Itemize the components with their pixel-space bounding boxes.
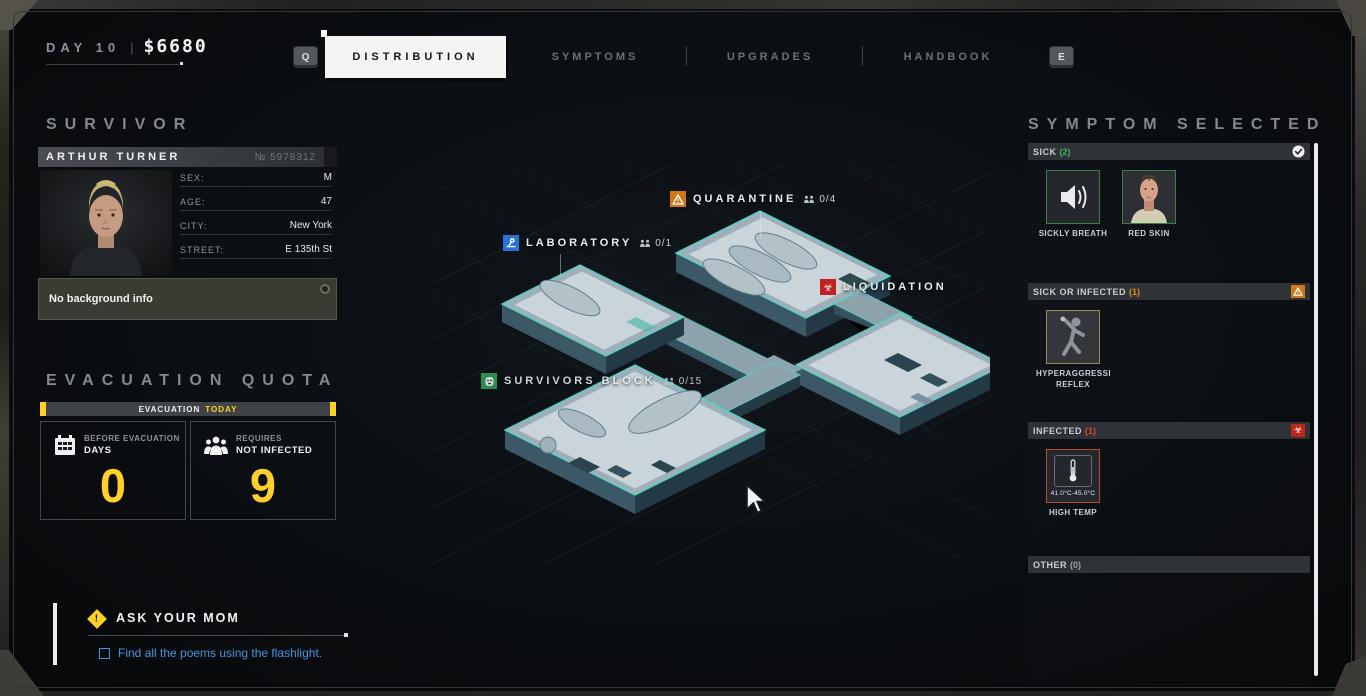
evacuation-section-title: EVACUATION QUOTA (46, 372, 338, 390)
people-icon (803, 195, 815, 204)
exclamation-diamond-icon: ! (87, 609, 107, 629)
people-icon (639, 239, 651, 248)
survivor-id: № 5978312 (255, 152, 316, 163)
people-icon (203, 434, 229, 456)
field-value: 47 (321, 196, 332, 210)
section-label: SICK (1033, 147, 1057, 157)
quest-objective[interactable]: Find all the poems using the flashlight. (99, 646, 339, 662)
location-count: 0/15 (663, 376, 702, 387)
quarantine-leader-line (760, 212, 761, 238)
tab-separator (862, 46, 863, 66)
map-label-quarantine[interactable]: QUARANTINE 0/4 (670, 191, 836, 207)
evac-subtitle: REQUIRES (236, 434, 312, 443)
quest-title: ASK YOUR MOM (116, 611, 240, 625)
game-screen: LABORATORY 0/1 QUARANTINE 0/4 ☣ LIQUIDAT… (0, 0, 1366, 696)
symptom-hyperaggressive-reflex[interactable]: HYPERAGGRESSIVE REFLEX (1042, 310, 1104, 416)
map-label-liquidation[interactable]: ☣ LIQUIDATION (820, 279, 947, 295)
field-row-age: AGE: 47 (180, 187, 332, 211)
requires-not-infected-value: 9 (191, 458, 335, 513)
section-header-sick-or-infected[interactable]: SICK OR INFECTED (1) (1028, 283, 1310, 300)
map-building-liquidation (796, 313, 990, 435)
location-count: 0/1 (639, 238, 672, 249)
objective-text: Find all the poems using the flashlight. (118, 646, 322, 662)
speaker-icon (1047, 171, 1099, 223)
day-counter: DAY 10 (46, 40, 120, 55)
evac-title: DAYS (84, 445, 180, 456)
map-label-survivors-block[interactable]: SURVIVORS BLOCK 0/15 (481, 373, 702, 389)
evac-card-days: BEFORE EVACUATION DAYS 0 (40, 421, 186, 520)
location-name: LABORATORY (526, 237, 632, 249)
objective-checkbox[interactable] (99, 648, 110, 659)
background-info-text: No background info (49, 293, 153, 305)
evac-card-requires: REQUIRES NOT INFECTED 9 (190, 421, 336, 520)
background-info-box: No background info (38, 278, 337, 320)
warning-icon (670, 191, 686, 207)
microscope-icon (503, 235, 519, 251)
map-label-laboratory[interactable]: LABORATORY 0/1 (503, 235, 672, 251)
calendar-icon (53, 434, 77, 456)
banner-cap-left (40, 402, 46, 416)
section-infected: INFECTED (1) ☣ 41.0°C-45.0°C HIGH TEMP (1028, 422, 1310, 550)
other-empty-body (1028, 573, 1310, 685)
eye-icon[interactable] (320, 284, 330, 294)
quest-divider (88, 635, 344, 636)
survivor-section-title: SURVIVOR (46, 116, 193, 134)
symptom-sickly-breath[interactable]: SICKLY BREATH (1042, 170, 1104, 277)
section-label: OTHER (1033, 560, 1067, 570)
field-label: SEX: (180, 173, 205, 186)
survivor-photo (40, 170, 172, 276)
banner-highlight: TODAY (205, 405, 237, 414)
section-other: OTHER (0) (1028, 556, 1310, 685)
mask-icon (481, 373, 497, 389)
symptom-selected-panel: SICK (2) SICKLY BREATH (1028, 143, 1318, 676)
field-label: AGE: (180, 197, 206, 210)
location-name: SURVIVORS BLOCK (504, 375, 656, 387)
laboratory-leader-line (560, 254, 561, 276)
symptom-label: HIGH TEMP (1036, 508, 1110, 519)
tab-symptoms[interactable]: SYMPTOMS (520, 36, 670, 78)
section-sick: SICK (2) SICKLY BREATH (1028, 143, 1310, 277)
section-count: (0) (1070, 560, 1081, 570)
count-text: 0/4 (819, 194, 836, 205)
field-label: CITY: (180, 221, 208, 234)
hotkey-q[interactable]: Q (294, 47, 317, 67)
field-row-sex: SEX: M (180, 163, 332, 187)
scrollbar[interactable] (1314, 143, 1318, 676)
section-header-infected[interactable]: INFECTED (1) ☣ (1028, 422, 1310, 439)
frame-right-edge (1355, 0, 1366, 696)
frame-bottom-edge (0, 691, 1366, 696)
tab-upgrades[interactable]: UPGRADES (695, 36, 845, 78)
tab-label: DISTRIBUTION (352, 51, 478, 63)
banner-label: EVACUATION (139, 405, 201, 414)
facility-map[interactable]: LABORATORY 0/1 QUARANTINE 0/4 ☣ LIQUIDAT… (430, 165, 990, 565)
field-row-city: CITY: New York (180, 211, 332, 235)
survivor-name: ARTHUR TURNER (46, 151, 180, 163)
field-value: M (324, 172, 332, 186)
mouse-cursor (744, 484, 772, 521)
field-label: STREET: (180, 245, 224, 258)
symptoms-section-title: SYMPTOM SELECTED (1028, 116, 1326, 134)
section-label: INFECTED (1033, 426, 1082, 436)
day-underline-tick (180, 62, 183, 65)
tab-notch (321, 30, 327, 37)
banner-cap-right (330, 402, 336, 416)
divider: | (130, 40, 133, 55)
evacuation-banner: EVACUATION TODAY (40, 402, 336, 416)
symptom-label: RED SKIN (1112, 229, 1186, 240)
days-before-evacuation-value: 0 (41, 458, 185, 513)
thermometer-icon (1054, 455, 1092, 487)
people-icon (663, 377, 675, 386)
tab-separator (686, 46, 687, 66)
section-label: SICK OR INFECTED (1033, 287, 1126, 297)
biohazard-icon: ☣ (1291, 424, 1305, 437)
symptom-label: HYPERAGGRESSIVE REFLEX (1036, 369, 1110, 391)
field-value: E 135th St (285, 244, 332, 258)
tab-handbook[interactable]: HANDBOOK (873, 36, 1023, 78)
map-building-laboratory (502, 265, 684, 374)
throwing-figure (1047, 311, 1099, 363)
location-count: 0/4 (803, 194, 836, 205)
hotkey-e[interactable]: E (1050, 47, 1073, 67)
frame-top-edge (0, 0, 1366, 9)
section-count: (1) (1085, 426, 1096, 436)
day-underline (46, 64, 179, 65)
section-count: (1) (1129, 287, 1140, 297)
evac-title: NOT INFECTED (236, 445, 312, 456)
isometric-map-drawing (430, 165, 990, 565)
section-header-other[interactable]: OTHER (0) (1028, 556, 1310, 573)
count-text: 0/1 (655, 238, 672, 249)
count-text: 0/15 (679, 376, 702, 387)
temp-range: 41.0°C-45.0°C (1047, 490, 1099, 497)
section-header-sick[interactable]: SICK (2) (1028, 143, 1310, 160)
biohazard-icon: ☣ (820, 279, 836, 295)
location-name: LIQUIDATION (843, 281, 947, 293)
biohazard-glyph: ☣ (1294, 426, 1303, 436)
red-skin-portrait (1123, 171, 1175, 223)
location-name: QUARANTINE (693, 193, 796, 205)
quest-divider-tick (344, 633, 348, 637)
frame-left-edge (0, 0, 9, 696)
symptom-label: SICKLY BREATH (1036, 229, 1110, 240)
field-row-street: STREET: E 135th St (180, 235, 332, 259)
section-count: (2) (1060, 147, 1071, 157)
symptom-red-skin[interactable]: RED SKIN (1118, 170, 1180, 277)
field-value: New York (290, 220, 332, 234)
shield-check-icon (1291, 145, 1305, 158)
money-counter: $6680 (143, 36, 207, 57)
tab-distribution[interactable]: DISTRIBUTION (325, 36, 506, 78)
biohazard-glyph: ☣ (823, 282, 833, 293)
survivor-fields: SEX: M AGE: 47 CITY: New York STREET: E … (180, 163, 332, 259)
warning-icon (1291, 285, 1305, 298)
evac-subtitle: BEFORE EVACUATION (84, 434, 180, 443)
symptom-high-temp[interactable]: 41.0°C-45.0°C HIGH TEMP (1042, 449, 1104, 550)
day-money-display: DAY 10 | $6680 (46, 36, 208, 57)
section-sick-or-infected: SICK OR INFECTED (1) (1028, 283, 1310, 416)
quest-accent-bar (53, 603, 57, 665)
